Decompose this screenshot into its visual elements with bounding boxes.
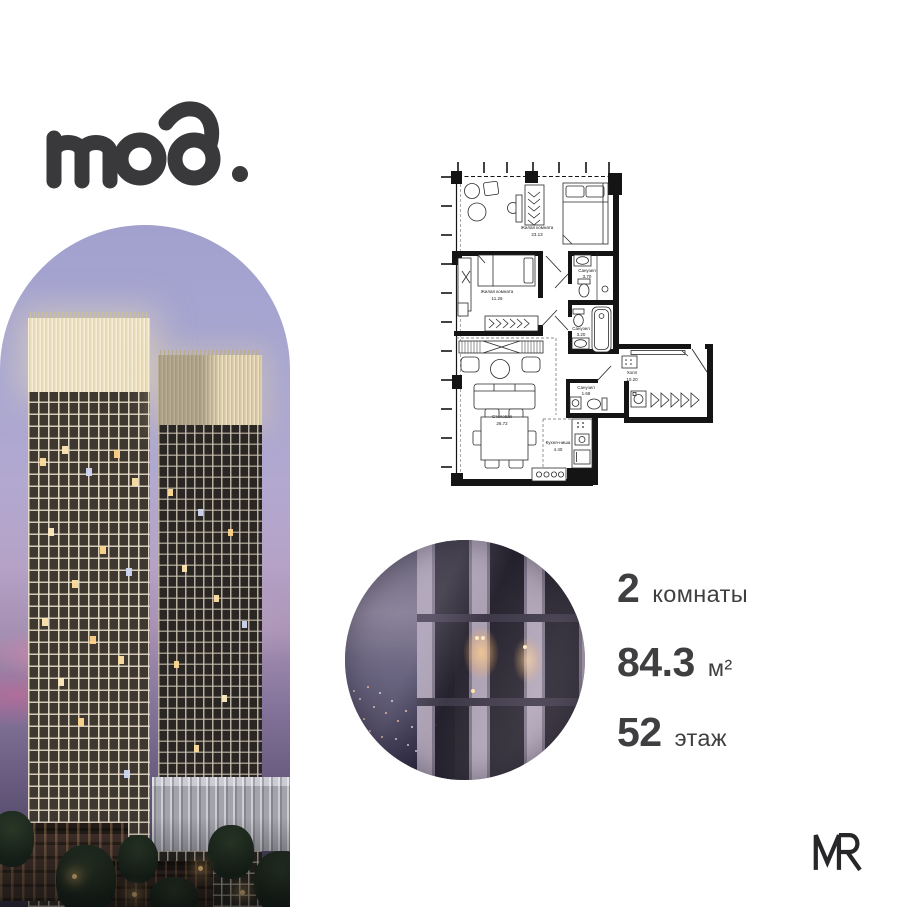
floor-value: 52 <box>617 712 662 753</box>
rooms-count: 2 <box>617 568 639 609</box>
circle-vignette <box>345 540 585 780</box>
room-label-bath1: Санузел <box>578 268 596 273</box>
room-label-kitchen: Кухня-ниша <box>546 440 571 445</box>
room-area-kitchen: 4.40 <box>554 447 563 452</box>
stat-area: 84.3 м² <box>617 642 733 683</box>
hero-photo-arch <box>0 225 290 907</box>
stat-floor: 52 этаж <box>617 712 727 753</box>
ground-shade <box>0 817 290 907</box>
floor-label: этаж <box>675 727 727 751</box>
stat-rooms: 2 комнаты <box>617 568 748 609</box>
area-value: 84.3 <box>617 642 695 683</box>
room-area-bath2: 3.20 <box>577 332 586 337</box>
room-area-bath3: 1.68 <box>582 391 591 396</box>
room-label-bedroom: Жилая комната <box>481 289 514 294</box>
room-area-dining: 26.72 <box>496 421 508 426</box>
mr-group-logo <box>811 832 869 872</box>
room-area-bedroom: 11.26 <box>492 296 503 301</box>
logo-period <box>232 166 248 182</box>
room-label-living: Жилая комната <box>521 225 554 230</box>
rooms-label: комнаты <box>652 583 748 607</box>
promo-card: Жилая комната 23.13 Жилая комната 11.26 … <box>0 0 907 907</box>
floor-plan: Жилая комната 23.13 Жилая комната 11.26 … <box>425 155 715 500</box>
tower-left-crown <box>28 318 150 392</box>
area-unit: м² <box>708 657 733 681</box>
room-label-dining: Столовая <box>492 414 513 419</box>
room-area-living: 23.13 <box>531 232 543 237</box>
room-area-bath1: 3.70 <box>583 274 592 279</box>
room-label-bath3: Санузел <box>577 385 595 390</box>
tower-right-crown <box>158 355 262 425</box>
facade-photo-circle <box>345 540 585 780</box>
mod-logo <box>42 97 256 189</box>
circle-chandelier-lights <box>345 540 347 542</box>
room-label-bath2: Санузел <box>572 326 590 331</box>
room-area-hall: 10.20 <box>626 377 638 382</box>
room-label-hall: Холл <box>627 370 638 375</box>
